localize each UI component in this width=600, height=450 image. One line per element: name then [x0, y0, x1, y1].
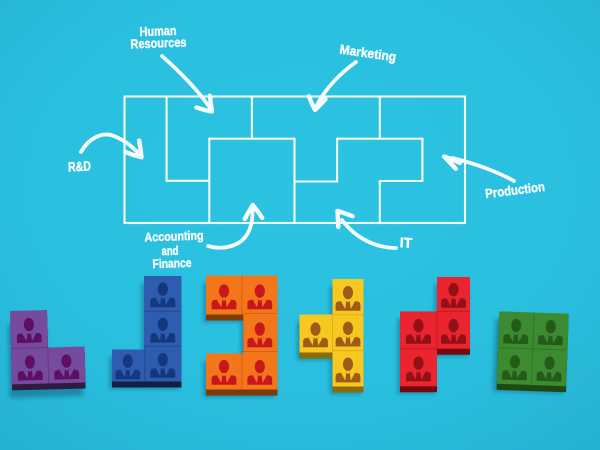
svg-text:Finance: Finance [152, 256, 191, 271]
svg-text:R&D: R&D [68, 158, 92, 174]
svg-text:Accounting: Accounting [144, 228, 203, 244]
svg-text:Resources: Resources [130, 35, 186, 52]
svg-text:IT: IT [399, 234, 413, 251]
